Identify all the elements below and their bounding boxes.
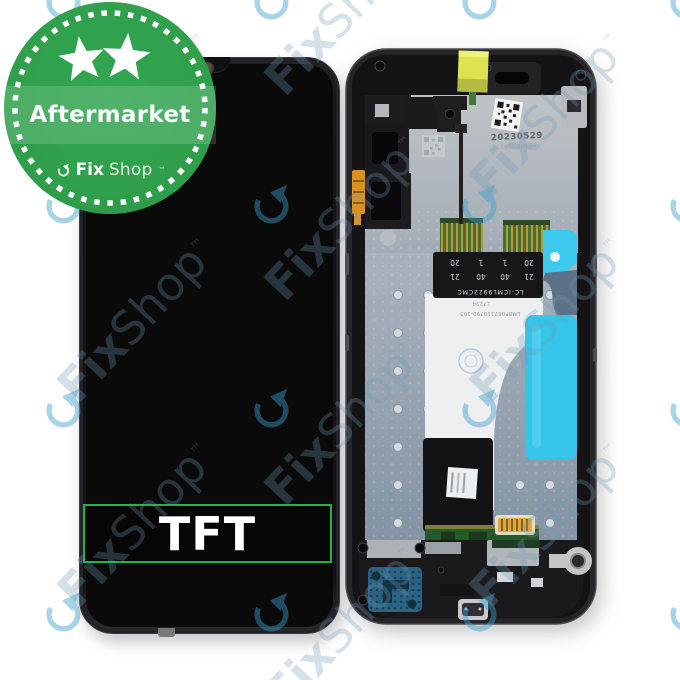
frame-rib bbox=[440, 584, 474, 596]
flex-tab bbox=[158, 628, 175, 637]
pcb-component bbox=[441, 532, 455, 540]
flex-ribbon-right-edge bbox=[503, 220, 550, 225]
brand-light: Shop bbox=[109, 160, 153, 180]
frame-cutout bbox=[372, 132, 398, 164]
refresh-arrow-icon bbox=[465, 0, 495, 17]
camera-hole bbox=[446, 110, 455, 119]
contact-tail bbox=[354, 214, 361, 225]
product-image: TFT bbox=[0, 0, 680, 680]
refresh-arrow-icon bbox=[55, 162, 71, 178]
camera-flex-line bbox=[459, 128, 463, 224]
pcb-edge bbox=[492, 540, 540, 548]
loudspeaker-mesh bbox=[368, 567, 422, 612]
plate-hole bbox=[380, 230, 396, 246]
refresh-arrow-icon bbox=[257, 0, 287, 17]
refresh-arrow-icon bbox=[49, 389, 79, 425]
adhesive-dimple bbox=[550, 252, 560, 262]
trademark-symbol: ™ bbox=[158, 166, 165, 174]
pin-label: 21 bbox=[524, 272, 534, 281]
pin-label: 20 bbox=[524, 258, 534, 267]
fixshop-watermark-text: FixShop™ bbox=[0, 225, 21, 412]
refresh-arrow-icon bbox=[673, 389, 680, 425]
side-button-tab bbox=[345, 335, 349, 351]
side-bracket-notch bbox=[567, 100, 581, 112]
frame-cutout bbox=[371, 182, 401, 220]
flex-code-line2: LM8F067110790-103 bbox=[460, 310, 520, 316]
shield-patch bbox=[425, 542, 461, 554]
badge-band: Aftermarket bbox=[4, 86, 216, 144]
flex-label-sticker bbox=[446, 467, 478, 499]
aftermarket-badge: Aftermarket FixShop™ bbox=[4, 2, 216, 214]
adhesive-sheen bbox=[532, 326, 541, 448]
panel-type-label: TFT bbox=[159, 507, 256, 561]
side-button-tab bbox=[593, 348, 597, 362]
flex-code-line1: L7294 bbox=[472, 300, 490, 306]
charging-port bbox=[458, 599, 488, 620]
plate-window bbox=[375, 104, 389, 117]
frame-assembly-back: 20 1 1 20 21 40 40 21 LC-ICML9922CMC L72… bbox=[345, 48, 597, 625]
refresh-arrow-icon bbox=[673, 185, 680, 221]
frame-screw bbox=[576, 70, 586, 80]
contact-pad bbox=[531, 578, 543, 587]
refresh-arrow-icon bbox=[49, 593, 79, 629]
frame-screw bbox=[358, 595, 368, 605]
earpiece-slot bbox=[495, 72, 529, 84]
star-icon bbox=[56, 33, 107, 82]
star-icon bbox=[100, 31, 152, 81]
frame-screw bbox=[358, 543, 368, 553]
pin-label: 1 bbox=[478, 258, 483, 267]
side-button-tab bbox=[345, 253, 349, 275]
badge-brand-row: FixShop™ bbox=[4, 160, 216, 180]
frame-screw bbox=[415, 543, 425, 553]
side-button-tab bbox=[593, 255, 597, 277]
factory-sticker bbox=[457, 50, 488, 92]
flex-ribbon-right bbox=[503, 220, 550, 254]
qr-label bbox=[491, 98, 523, 132]
sticker-tail bbox=[469, 92, 476, 105]
shield-patch bbox=[367, 540, 421, 558]
pin-label: 40 bbox=[476, 272, 486, 281]
pin-label: 40 bbox=[500, 272, 510, 281]
frame-screw bbox=[438, 567, 444, 573]
bottom-components bbox=[358, 540, 592, 620]
pin-label: 21 bbox=[450, 272, 460, 281]
brand-bold: Fix bbox=[76, 160, 104, 180]
panel-type-badge: TFT bbox=[83, 504, 332, 563]
fixshop-watermark-text: FixShop™ bbox=[0, 430, 21, 617]
badge-band-label: Aftermarket bbox=[29, 102, 190, 128]
refresh-arrow-icon bbox=[673, 593, 680, 629]
pin-label: 20 bbox=[450, 258, 460, 267]
pcb-component bbox=[469, 532, 487, 540]
flex-code-main: LC-ICML9922CMC bbox=[457, 288, 524, 295]
etched-qr-code bbox=[422, 135, 445, 157]
refresh-arrow-icon bbox=[673, 0, 680, 17]
frame-screw bbox=[375, 61, 385, 71]
pin-label: 1 bbox=[502, 258, 507, 267]
adhesive-upper bbox=[543, 230, 577, 273]
contact-pad bbox=[497, 572, 513, 582]
